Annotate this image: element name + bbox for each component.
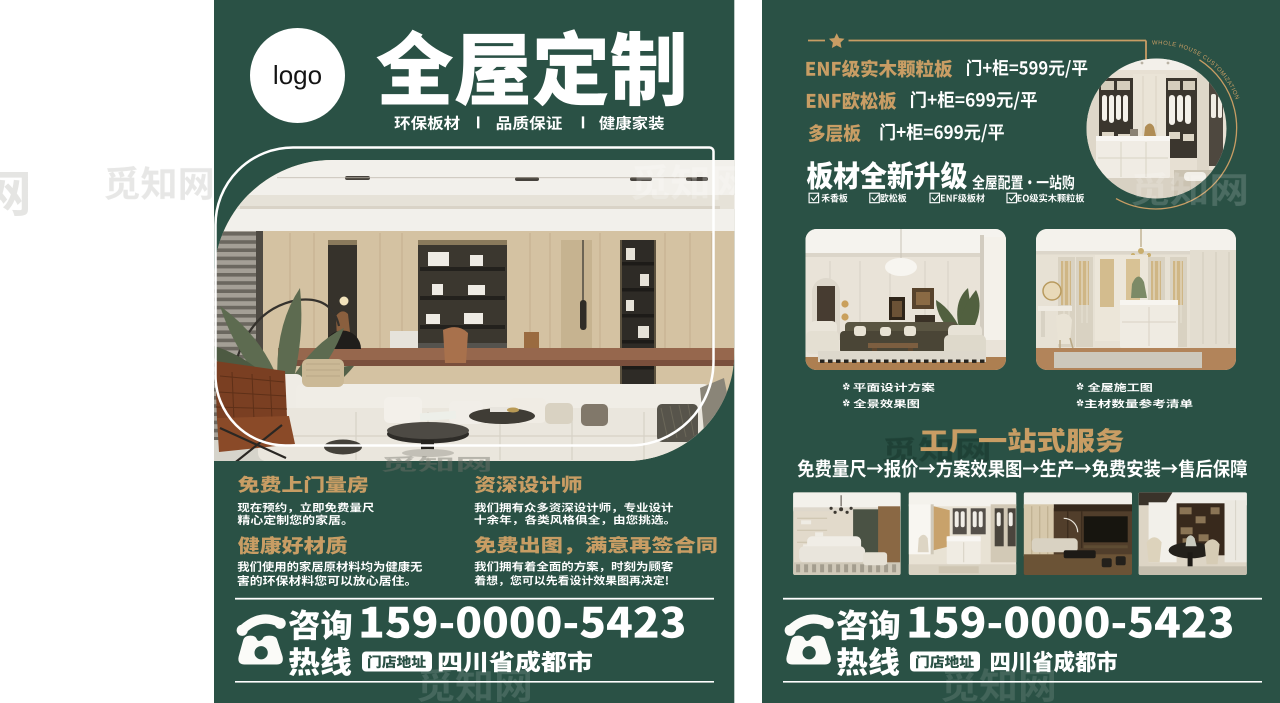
svg-text:logo: logo [273,60,322,90]
